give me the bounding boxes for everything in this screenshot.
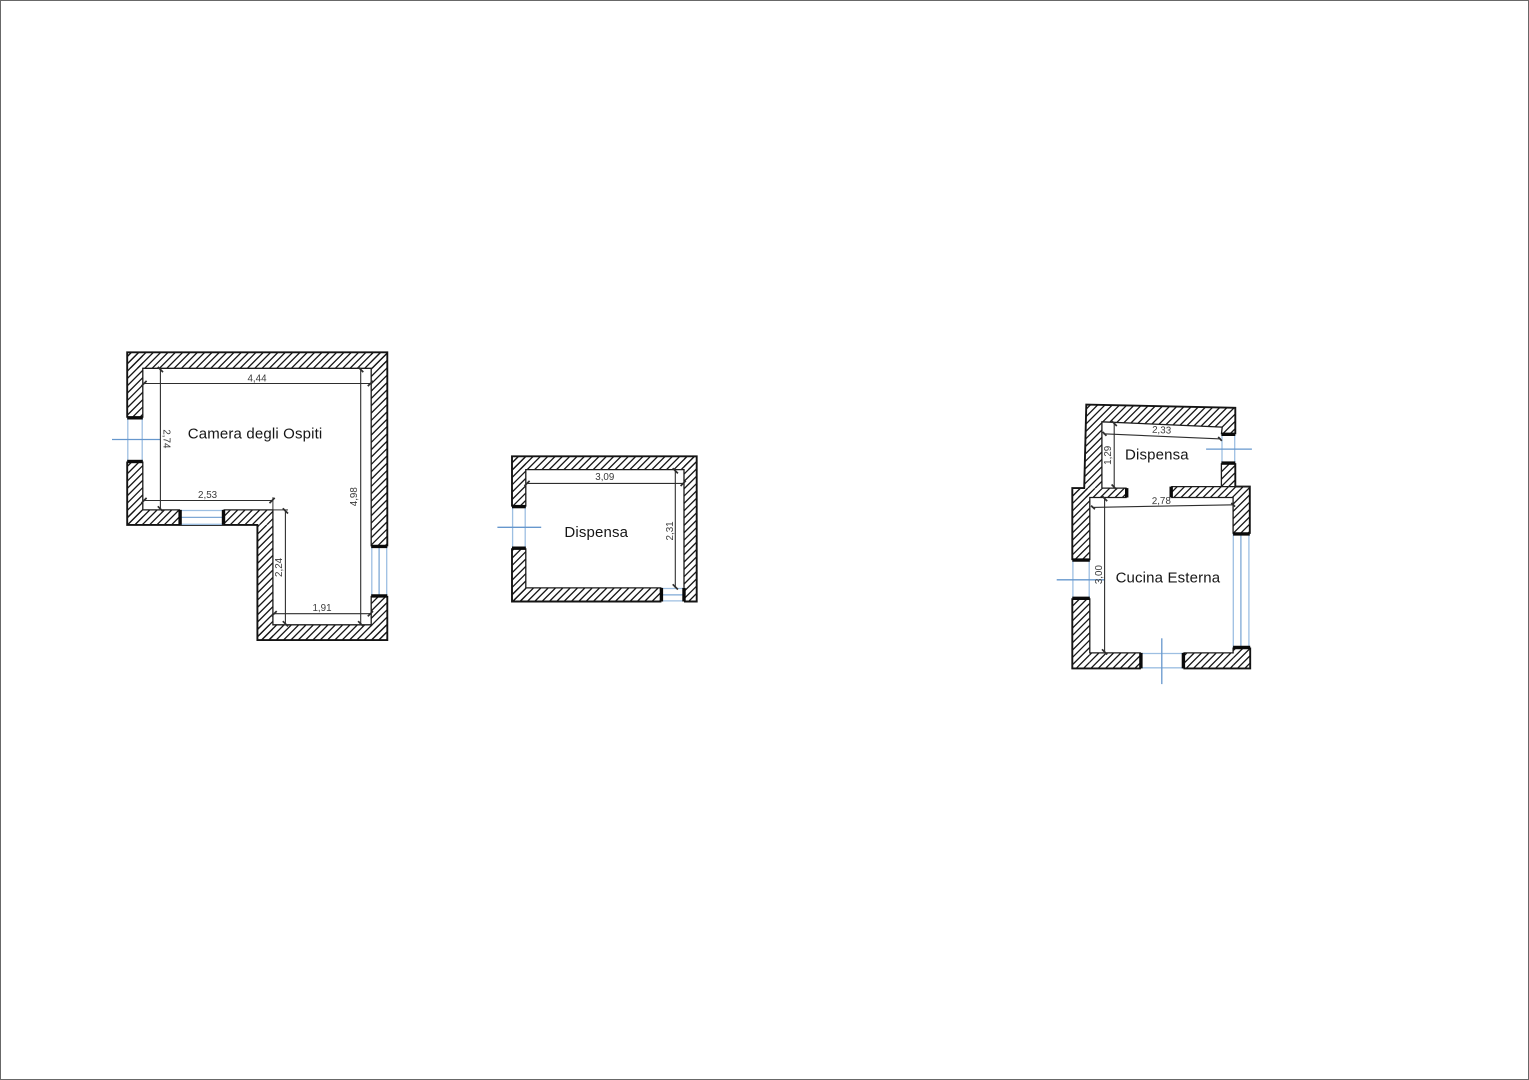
svg-text:Cucina Esterna: Cucina Esterna: [1116, 570, 1221, 587]
svg-text:4,98: 4,98: [349, 487, 360, 507]
svg-text:1,91: 1,91: [312, 603, 331, 614]
svg-text:2,33: 2,33: [1152, 425, 1172, 437]
svg-text:1,29: 1,29: [1103, 446, 1114, 465]
svg-text:Camera degli Ospiti: Camera degli Ospiti: [188, 426, 323, 443]
svg-text:Dispensa: Dispensa: [564, 524, 628, 541]
svg-text:2,31: 2,31: [665, 521, 676, 540]
svg-text:2,24: 2,24: [274, 557, 285, 577]
svg-text:4,44: 4,44: [247, 373, 267, 384]
svg-text:Dispensa: Dispensa: [1125, 447, 1189, 464]
svg-text:2,53: 2,53: [198, 490, 218, 501]
svg-text:2,74: 2,74: [161, 429, 172, 449]
svg-text:2,78: 2,78: [1152, 496, 1172, 507]
svg-text:3,09: 3,09: [595, 472, 614, 483]
svg-text:3,00: 3,00: [1094, 565, 1105, 585]
